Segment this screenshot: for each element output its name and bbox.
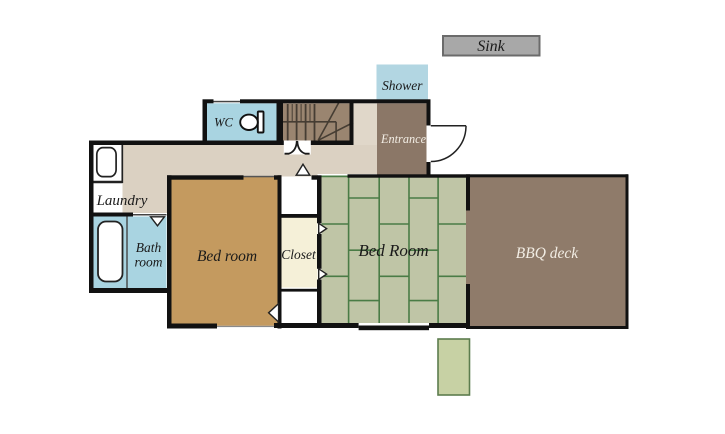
svg-text:WC: WC	[214, 116, 233, 130]
svg-text:Closet: Closet	[281, 247, 317, 262]
svg-text:Bath: Bath	[136, 240, 162, 255]
svg-text:Laundry: Laundry	[96, 193, 148, 209]
svg-text:Entrance: Entrance	[380, 132, 427, 146]
svg-text:Bed room: Bed room	[197, 248, 257, 265]
svg-text:Bed Room: Bed Room	[358, 241, 428, 260]
svg-text:Shower: Shower	[382, 78, 423, 93]
svg-text:BBQ deck: BBQ deck	[516, 245, 580, 262]
svg-text:room: room	[134, 255, 162, 270]
svg-text:Sink: Sink	[477, 38, 505, 55]
